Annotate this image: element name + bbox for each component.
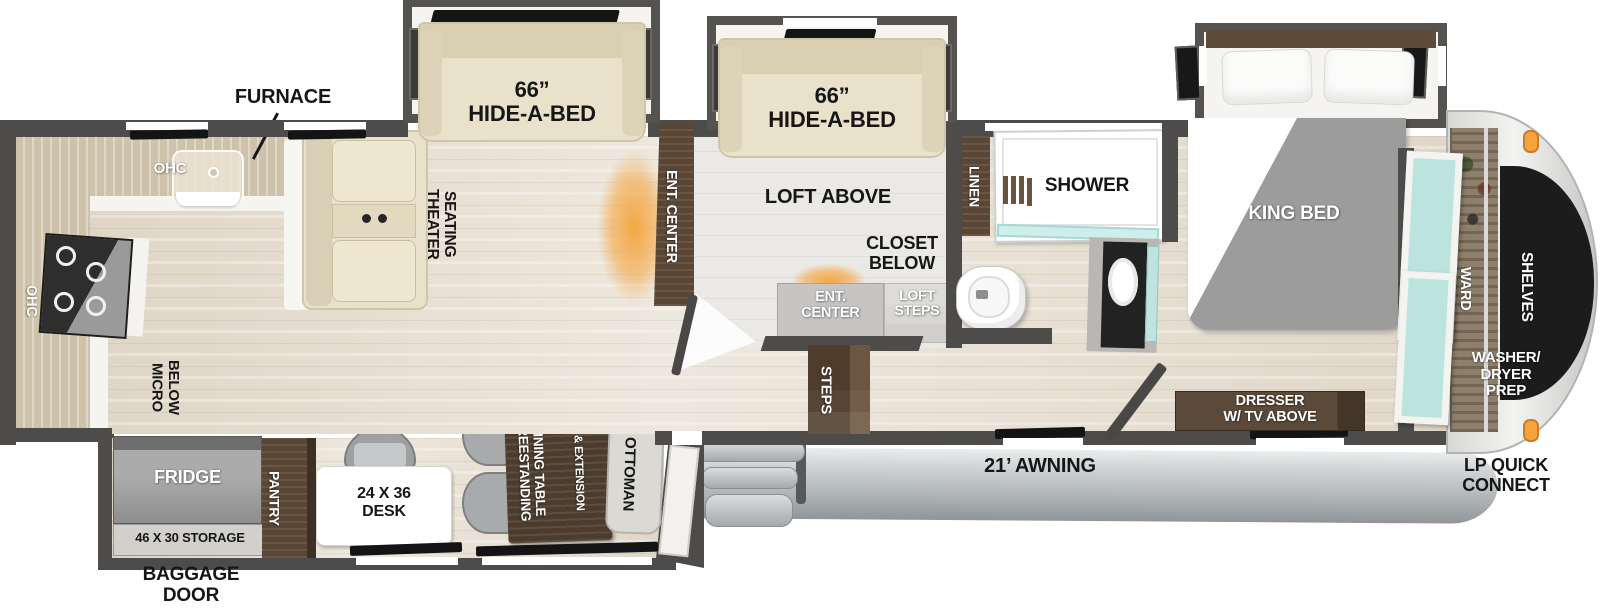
burner-icon xyxy=(56,246,76,266)
ohc-top-label: OHC xyxy=(142,161,198,178)
window xyxy=(1256,438,1344,445)
theater-sofa-back xyxy=(306,134,332,306)
theater-seat xyxy=(332,240,416,302)
wall-left xyxy=(0,120,16,445)
faucet-icon xyxy=(208,167,219,178)
window xyxy=(783,18,877,27)
shelves-label: SHELVES xyxy=(1518,234,1535,340)
window-awning-bar xyxy=(130,129,208,139)
shower-head-icon xyxy=(1003,176,1008,204)
bed-headboard xyxy=(1206,30,1436,48)
window xyxy=(1199,46,1207,86)
kitchen-sink-basin xyxy=(176,192,240,206)
dresser-label: DRESSER W/ TV ABOVE xyxy=(1175,394,1365,426)
slide-window-panel xyxy=(1175,45,1202,100)
wardrobe-mirror-door xyxy=(1394,271,1456,426)
bed-pillow xyxy=(1323,48,1415,105)
lp-port-icon xyxy=(1523,419,1539,442)
burner-icon xyxy=(54,292,74,312)
entry-step xyxy=(705,494,793,527)
wall-bath-right xyxy=(1162,122,1178,242)
cupholder-icon xyxy=(362,214,371,223)
toilet-flush-icon xyxy=(976,290,988,299)
steps-label: STEPS xyxy=(817,352,834,428)
lp-quick-connect-label: LP QUICK CONNECT xyxy=(1444,456,1568,496)
ent-center-strip-label: ENT. CENTER xyxy=(662,136,678,296)
pantry-label: PANTRY xyxy=(266,448,281,548)
wall-bottom-left-stub xyxy=(0,428,112,442)
ottoman-label: OTTOMAN xyxy=(618,424,638,525)
loft-steps-label: LOFT STEPS xyxy=(884,288,950,319)
stove-cooktop xyxy=(39,233,134,339)
vanity-glass xyxy=(1145,246,1160,342)
toilet-bowl xyxy=(968,276,1010,318)
hide-a-bed-left-label: 66” HIDE-A-BED xyxy=(420,78,644,126)
desk-label: 24 X 36 DESK xyxy=(316,485,452,520)
ent-center-cabinet-label: ENT. CENTER xyxy=(777,290,884,322)
king-bed-label: KING BED xyxy=(1232,204,1356,225)
window-awning-bar xyxy=(288,129,366,139)
theater-seating-label: THEATER SEATING xyxy=(424,166,458,282)
cupholder-icon xyxy=(378,214,387,223)
lp-port-icon xyxy=(1523,130,1539,153)
window xyxy=(356,557,458,565)
window xyxy=(482,557,652,565)
rv-floorplan: FRIDGE 46 X 30 STORAGE PANTRY 24 X 36 DE… xyxy=(0,0,1600,615)
burner-icon xyxy=(86,296,106,316)
window xyxy=(1438,46,1446,86)
vanity-sink xyxy=(1108,258,1138,306)
burner-icon xyxy=(86,262,106,282)
loft-above-label: LOFT ABOVE xyxy=(756,186,900,208)
washer-dryer-label: WASHER/ DRYER PREP xyxy=(1444,350,1568,400)
ward-label: WARD xyxy=(1456,250,1472,328)
awning-label: 21’ AWNING xyxy=(960,455,1120,477)
window xyxy=(1003,438,1083,445)
entry-step xyxy=(702,467,798,489)
baggage-door-label: BAGGAGE DOOR xyxy=(128,565,254,607)
hide-a-bed-right-label: 66” HIDE-A-BED xyxy=(720,84,944,132)
theater-console xyxy=(332,204,416,238)
linen-label: LINEN xyxy=(966,144,981,230)
theater-seat xyxy=(332,140,416,202)
fridge-label: FRIDGE xyxy=(113,468,262,488)
furnace-label: FURNACE xyxy=(226,86,340,108)
closet-below-label: CLOSET BELOW xyxy=(852,234,952,274)
storage-label: 46 X 30 STORAGE xyxy=(113,531,267,545)
wall-bath-bottom xyxy=(946,328,1052,344)
shower-label: SHOWER xyxy=(1032,176,1142,197)
micro-below-label: MICRO BELOW xyxy=(148,344,181,430)
bed-pillow xyxy=(1221,48,1313,105)
entry-door-opening xyxy=(672,431,702,445)
ohc-side-label: OHC xyxy=(22,274,38,328)
